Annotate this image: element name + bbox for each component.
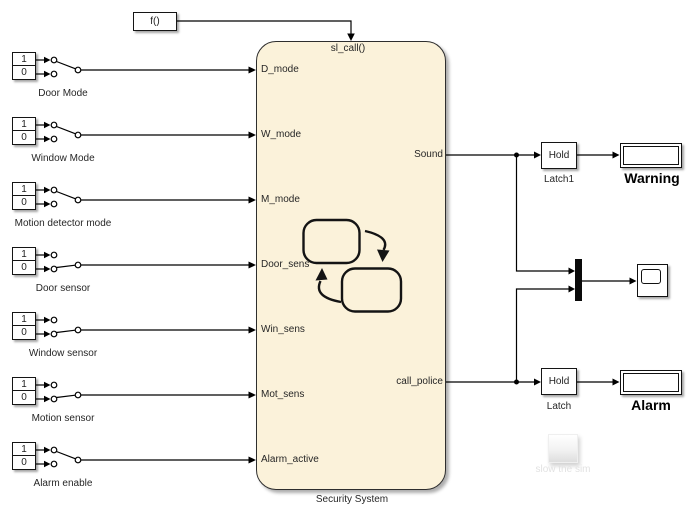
constant-blocks[interactable]: 1 0 xyxy=(12,52,36,80)
source-label: Motion detector mode xyxy=(15,218,112,229)
chart-output-port-call-police: call_police xyxy=(396,376,443,387)
chart-output-port-sound: Sound xyxy=(414,149,443,160)
chart-input-port-d-mode: D_mode xyxy=(261,64,299,75)
latch1-block[interactable]: Hold xyxy=(541,142,577,169)
chart-input-port-mot-sens: Mot_sens xyxy=(261,389,304,400)
constant-off-block[interactable]: 0 xyxy=(13,66,35,79)
source-group-motion-sensor[interactable]: 1 0 Motion sensor xyxy=(12,377,132,429)
function-call-label: f() xyxy=(150,16,159,27)
constant-blocks[interactable]: 1 0 xyxy=(12,377,36,405)
chart-name-label: Security System xyxy=(316,494,388,505)
constant-on-block[interactable]: 1 xyxy=(13,118,35,131)
slow-sim-button-label: slow the sim xyxy=(535,464,590,475)
mux-output-wire xyxy=(582,278,637,285)
constant-blocks[interactable]: 1 0 xyxy=(12,442,36,470)
constant-off-block[interactable]: 0 xyxy=(13,326,35,339)
trigger-wire xyxy=(177,21,355,41)
chart-input-port-m-mode: M_mode xyxy=(261,194,300,205)
source-group-motion-detector-mode[interactable]: 1 0 Motion detector mode xyxy=(12,182,132,234)
chart-trigger-label: sl_call() xyxy=(331,43,365,54)
constant-on-block[interactable]: 1 xyxy=(13,443,35,456)
manual-switch-icon[interactable] xyxy=(36,185,84,215)
latch-label: Latch xyxy=(547,401,571,412)
manual-switch-icon[interactable] xyxy=(36,250,84,280)
constant-blocks[interactable]: 1 0 xyxy=(12,182,36,210)
constant-blocks[interactable]: 1 0 xyxy=(12,312,36,340)
constant-on-block[interactable]: 1 xyxy=(13,183,35,196)
manual-switch-icon[interactable] xyxy=(36,55,84,85)
manual-switch-icon[interactable] xyxy=(36,120,84,150)
manual-switch-icon[interactable] xyxy=(36,380,84,410)
source-group-alarm-enable[interactable]: 1 0 Alarm enable xyxy=(12,442,132,494)
alarm-display-block[interactable] xyxy=(620,370,682,395)
constant-on-block[interactable]: 1 xyxy=(13,248,35,261)
constant-off-block[interactable]: 0 xyxy=(13,196,35,209)
alarm-display-label: Alarm xyxy=(631,397,671,413)
manual-switch-icon[interactable] xyxy=(36,315,84,345)
slow-sim-button[interactable] xyxy=(548,434,578,463)
source-label: Window sensor xyxy=(29,348,97,359)
chart-input-port-door-sens: Door_sens xyxy=(261,259,309,270)
constant-off-block[interactable]: 0 xyxy=(13,131,35,144)
constant-blocks[interactable]: 1 0 xyxy=(12,247,36,275)
constant-off-block[interactable]: 0 xyxy=(13,456,35,469)
warning-display-label: Warning xyxy=(624,170,679,186)
warning-display-block[interactable] xyxy=(620,143,682,168)
simulink-model-canvas: f() 1 0 Door Mode 1 0 Window Mode xyxy=(0,0,692,517)
manual-switch-icon[interactable] xyxy=(36,445,84,475)
latch1-text: Hold xyxy=(549,150,570,161)
source-label: Door Mode xyxy=(38,88,87,99)
source-label: Window Mode xyxy=(31,153,94,164)
latch-output-wires xyxy=(577,152,620,386)
scope-screen-icon xyxy=(641,269,661,284)
chart-input-port-alarm-active: Alarm_active xyxy=(261,454,319,465)
source-label: Motion sensor xyxy=(32,413,95,424)
chart-input-port-win-sens: Win_sens xyxy=(261,324,305,335)
source-label: Alarm enable xyxy=(34,478,93,489)
source-label: Door sensor xyxy=(36,283,90,294)
latch-block[interactable]: Hold xyxy=(541,368,577,395)
constant-on-block[interactable]: 1 xyxy=(13,378,35,391)
warning-display-value xyxy=(623,146,679,165)
source-group-window-mode[interactable]: 1 0 Window Mode xyxy=(12,117,132,169)
latch1-label: Latch1 xyxy=(544,174,574,185)
alarm-display-value xyxy=(623,373,679,392)
constant-on-block[interactable]: 1 xyxy=(13,313,35,326)
source-group-door-mode[interactable]: 1 0 Door Mode xyxy=(12,52,132,104)
mux-block[interactable] xyxy=(575,259,582,301)
constant-on-block[interactable]: 1 xyxy=(13,53,35,66)
latch-text: Hold xyxy=(549,376,570,387)
sound-wire xyxy=(446,152,575,275)
function-call-generator-block[interactable]: f() xyxy=(133,12,177,31)
chart-input-port-w-mode: W_mode xyxy=(261,129,301,140)
source-group-window-sensor[interactable]: 1 0 Window sensor xyxy=(12,312,132,364)
constant-off-block[interactable]: 0 xyxy=(13,391,35,404)
scope-block[interactable] xyxy=(637,264,668,297)
constant-off-block[interactable]: 0 xyxy=(13,261,35,274)
constant-blocks[interactable]: 1 0 xyxy=(12,117,36,145)
source-group-door-sensor[interactable]: 1 0 Door sensor xyxy=(12,247,132,299)
